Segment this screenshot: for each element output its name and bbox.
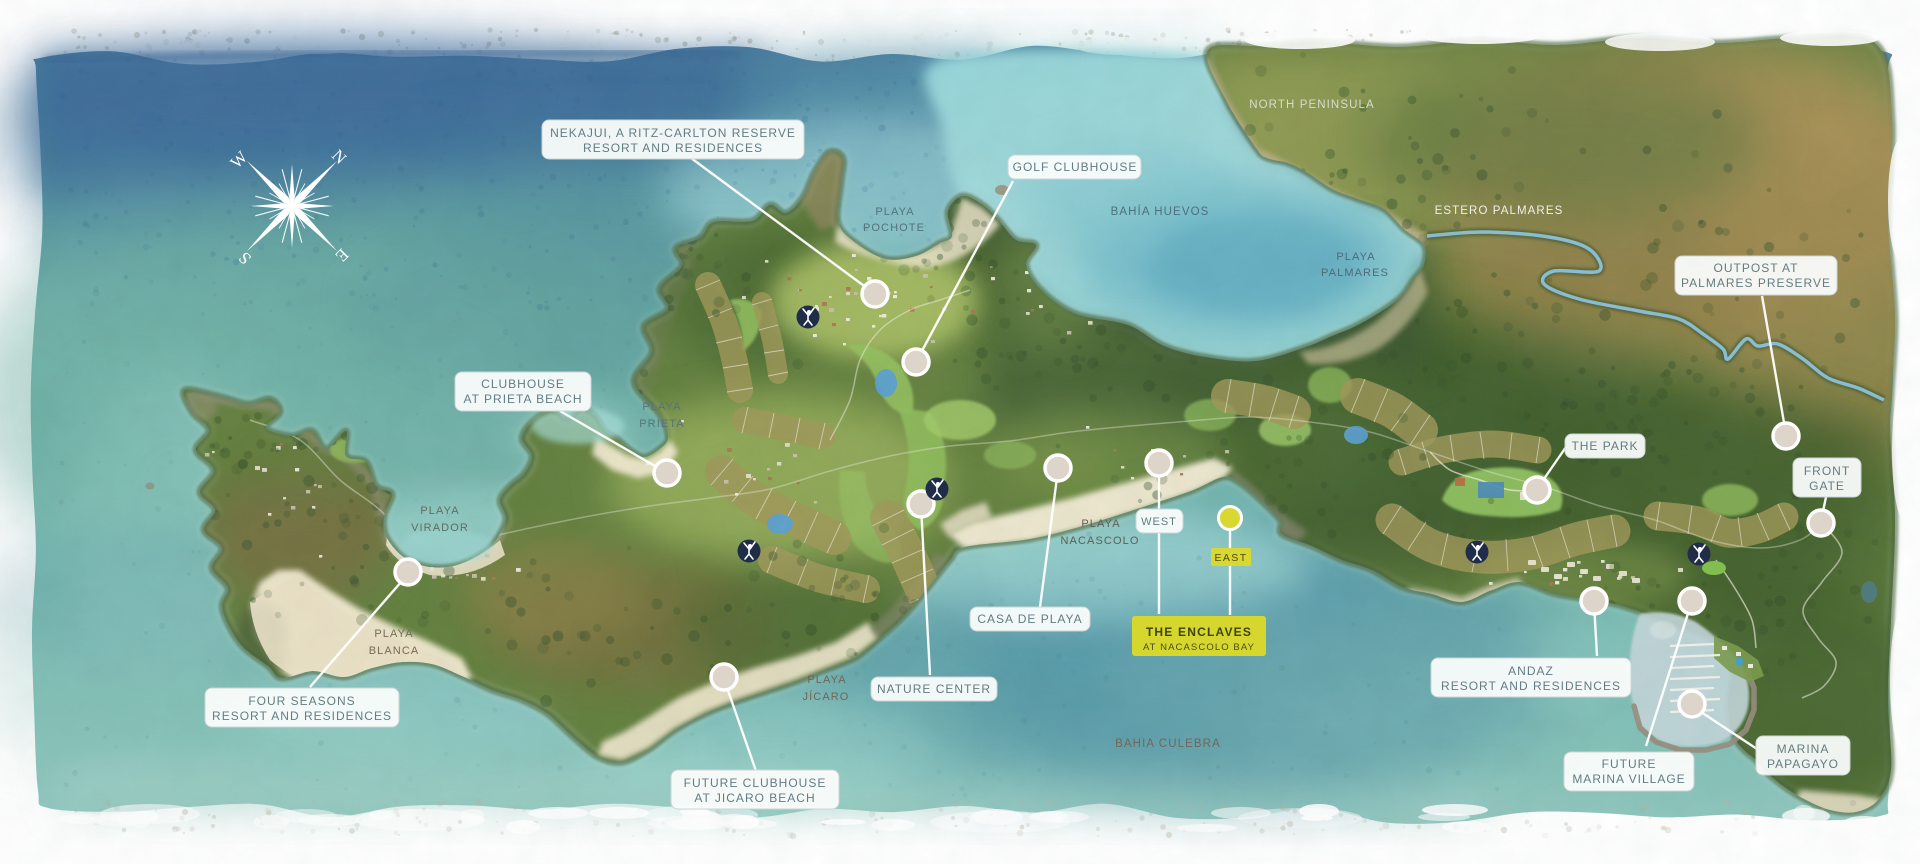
svg-text:WEST: WEST (1141, 516, 1177, 528)
svg-text:RESORT AND RESIDENCES: RESORT AND RESIDENCES (1441, 679, 1621, 693)
svg-text:BLANCA: BLANCA (369, 645, 420, 657)
svg-text:THE ENCLAVES: THE ENCLAVES (1146, 625, 1252, 639)
svg-text:PLAYA: PLAYA (374, 628, 413, 640)
svg-text:RESORT AND RESIDENCES: RESORT AND RESIDENCES (583, 141, 763, 155)
svg-text:FUTURE CLUBHOUSE: FUTURE CLUBHOUSE (684, 776, 827, 790)
svg-text:NEKAJUI, A RITZ-CARLTON RESERV: NEKAJUI, A RITZ-CARLTON RESERVE (550, 126, 796, 140)
svg-text:MARINA VILLAGE: MARINA VILLAGE (1572, 772, 1685, 786)
svg-text:PRIETA: PRIETA (639, 418, 685, 430)
svg-text:ESTERO PALMARES: ESTERO PALMARES (1435, 205, 1564, 217)
svg-text:VIRADOR: VIRADOR (411, 522, 469, 534)
svg-text:PLAYA: PLAYA (642, 401, 681, 413)
svg-text:AT PRIETA BEACH: AT PRIETA BEACH (463, 392, 582, 406)
svg-text:PLAYA: PLAYA (875, 206, 914, 218)
svg-text:OUTPOST AT: OUTPOST AT (1714, 261, 1799, 275)
svg-text:PLAYA: PLAYA (807, 674, 846, 686)
svg-text:CASA DE PLAYA: CASA DE PLAYA (977, 612, 1082, 626)
svg-text:EAST: EAST (1214, 552, 1247, 564)
svg-text:JÍCARO: JÍCARO (803, 690, 850, 703)
svg-text:FOUR SEASONS: FOUR SEASONS (248, 694, 355, 708)
svg-text:POCHOTE: POCHOTE (863, 222, 925, 234)
svg-text:GATE: GATE (1809, 479, 1845, 493)
svg-text:AT NACASCOLO BAY: AT NACASCOLO BAY (1143, 642, 1255, 653)
svg-text:THE PARK: THE PARK (1571, 439, 1638, 453)
svg-text:BAHIA CULEBRA: BAHIA CULEBRA (1115, 738, 1221, 750)
svg-text:CLUBHOUSE: CLUBHOUSE (481, 377, 565, 391)
svg-text:FRONT: FRONT (1804, 464, 1850, 478)
svg-text:ANDAZ: ANDAZ (1508, 664, 1554, 678)
svg-text:GOLF CLUBHOUSE: GOLF CLUBHOUSE (1013, 160, 1138, 174)
svg-text:PAPAGAYO: PAPAGAYO (1767, 757, 1839, 771)
svg-text:PLAYA: PLAYA (1081, 518, 1120, 530)
svg-text:NATURE CENTER: NATURE CENTER (877, 682, 991, 696)
svg-text:PLAYA: PLAYA (420, 505, 459, 517)
svg-text:RESORT AND RESIDENCES: RESORT AND RESIDENCES (212, 709, 392, 723)
svg-text:FUTURE: FUTURE (1602, 757, 1657, 771)
svg-text:MARINA: MARINA (1777, 742, 1830, 756)
svg-text:NORTH PENINSULA: NORTH PENINSULA (1249, 99, 1375, 111)
svg-text:PALMARES PRESERVE: PALMARES PRESERVE (1681, 276, 1831, 290)
svg-text:BAHÍA HUEVOS: BAHÍA HUEVOS (1111, 205, 1210, 218)
svg-text:AT JICARO BEACH: AT JICARO BEACH (694, 791, 815, 805)
svg-text:PALMARES: PALMARES (1321, 267, 1389, 279)
svg-text:NACASCOLO: NACASCOLO (1061, 535, 1140, 547)
svg-text:PLAYA: PLAYA (1336, 251, 1375, 263)
